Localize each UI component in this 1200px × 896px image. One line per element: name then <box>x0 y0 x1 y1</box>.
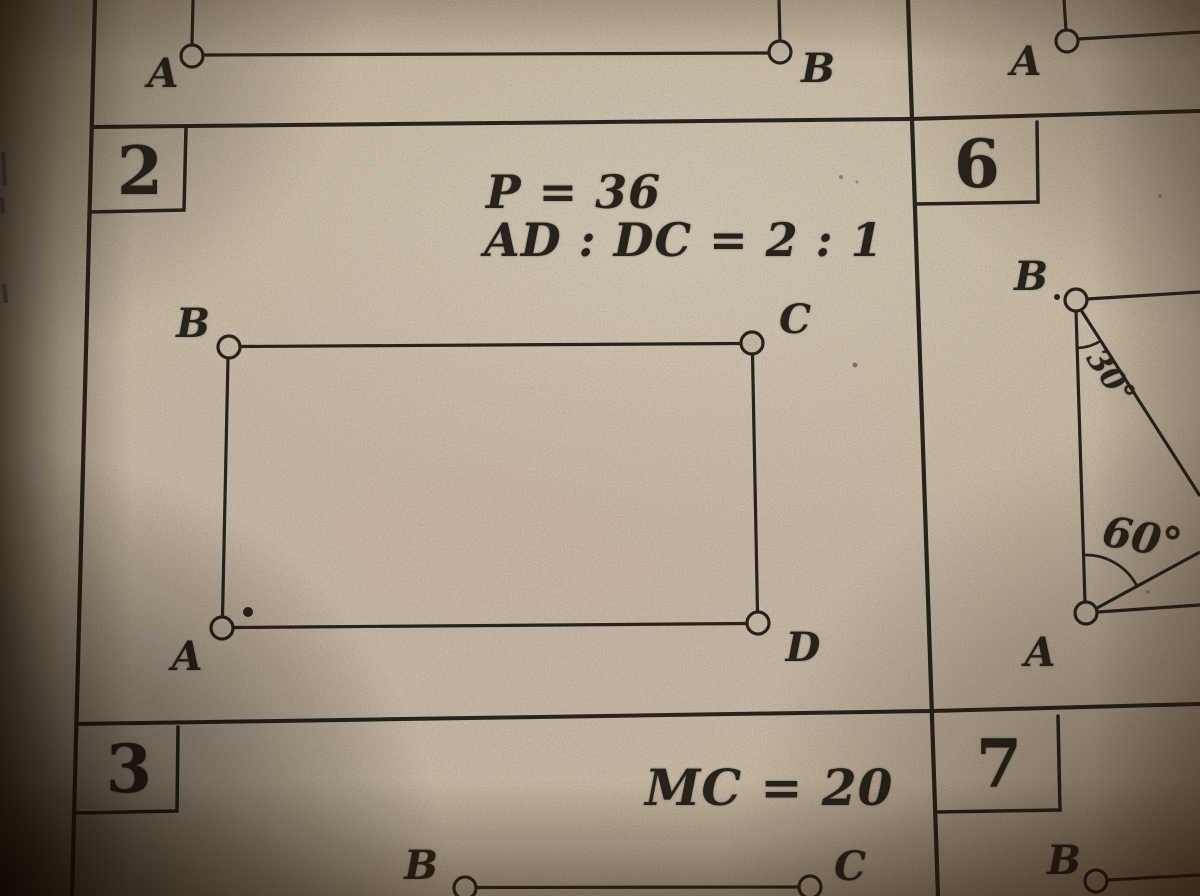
speck <box>839 175 843 179</box>
problem2-label-b: B <box>176 304 210 344</box>
problem2-label-c: C <box>779 300 811 340</box>
problem6-triangle-partial <box>1054 289 1200 624</box>
grid-column-border <box>908 0 938 896</box>
problem2-given-ratio: AD : DC = 2 : 1 <box>484 217 884 263</box>
top-right-figure-label-a: A <box>1010 42 1041 82</box>
side-ad <box>233 624 747 628</box>
side-from-a <box>1078 32 1200 39</box>
speck <box>1158 194 1162 198</box>
problem2-number: 2 <box>117 138 163 204</box>
problem7-partial-figure <box>1085 870 1200 892</box>
speck <box>856 181 859 184</box>
side-from-b <box>1107 875 1200 880</box>
pen-mark <box>2 197 3 214</box>
problem3-partial-rectangle <box>454 876 821 896</box>
speck <box>1146 590 1150 594</box>
vertex-point-a <box>181 45 203 67</box>
side-cd <box>753 354 758 612</box>
grid-row-border-2 <box>76 704 1200 724</box>
vertex-point-b <box>1085 870 1107 892</box>
top-left-figure-label-b: B <box>801 49 835 89</box>
vertex-point-b <box>454 877 476 896</box>
workbook-page-photo: A B A 2 P = 36 AD : DC = 2 : 1 B C A D 6… <box>0 0 1200 896</box>
figure-top-right-partial <box>1056 0 1200 52</box>
problem3-number: 3 <box>106 736 152 802</box>
problem3-label-c: C <box>834 847 866 887</box>
problem6-label-a: A <box>1024 633 1055 673</box>
vertex-point-d <box>747 612 769 634</box>
side-ab <box>1076 311 1085 602</box>
side-from-b-diagonal <box>1081 310 1200 496</box>
problem7-number: 7 <box>976 731 1022 797</box>
angle-arc-at-b <box>1078 340 1102 348</box>
problem2-given-perimeter: P = 36 <box>486 169 661 215</box>
figure-top-left-partial-rectangle <box>181 0 791 67</box>
grid-left-border <box>72 0 95 896</box>
vertex-point-a <box>1056 30 1078 52</box>
problem3-given-mc: MC = 20 <box>645 763 893 813</box>
speck <box>853 363 858 368</box>
problem6-label-b: B <box>1014 257 1048 297</box>
vertex-point-b <box>1065 289 1087 311</box>
dot-after-b-label <box>1054 294 1060 300</box>
edge-above-a <box>192 0 193 45</box>
problem2-label-a: A <box>171 637 202 677</box>
side-from-b-horizontal <box>1087 292 1200 299</box>
side-ab <box>203 53 769 55</box>
stray-ink-dot <box>243 607 253 617</box>
problem7-label-b: B <box>1047 841 1081 881</box>
side-bc <box>477 887 799 888</box>
side-ab <box>223 358 229 617</box>
problem6-number: 6 <box>954 131 1000 197</box>
blue-pen-marks-page-edge <box>2 152 6 303</box>
vertex-point-b <box>769 41 791 63</box>
vertex-point-a <box>211 617 233 639</box>
edge-above-a <box>1064 0 1066 30</box>
pen-mark <box>4 284 6 303</box>
problem2-label-d: D <box>786 628 821 668</box>
pen-mark <box>3 152 5 186</box>
side-from-a-horizontal <box>1098 605 1200 612</box>
problem3-label-b: B <box>404 846 438 886</box>
grid-row-border-1 <box>92 111 1200 127</box>
vertex-point-c <box>799 876 821 896</box>
problem2-rectangle-abcd <box>211 332 769 639</box>
edge-above-b <box>779 0 780 41</box>
vertex-point-a <box>1075 602 1097 624</box>
vertex-point-b <box>218 336 240 358</box>
table-grid-lines <box>72 0 1200 896</box>
top-left-figure-label-a: A <box>147 54 178 94</box>
vertex-point-c <box>741 332 763 354</box>
side-bc <box>240 344 741 347</box>
